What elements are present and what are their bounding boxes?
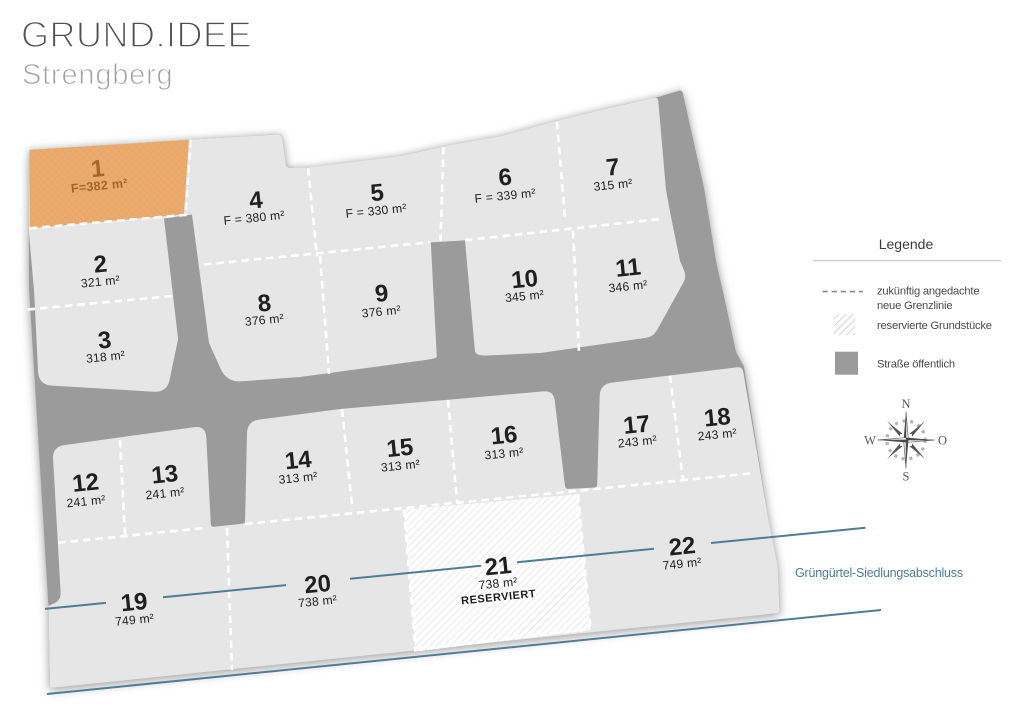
svg-text:Strengberg: Strengberg xyxy=(22,59,174,91)
svg-text:S: S xyxy=(903,470,910,484)
svg-text:Straße öffentlich: Straße öffentlich xyxy=(877,358,955,370)
svg-text:N: N xyxy=(901,397,910,411)
svg-text:Grüngürtel-Siedlungsabschluss: Grüngürtel-Siedlungsabschluss xyxy=(795,566,963,580)
svg-text:O: O xyxy=(938,433,947,447)
svg-text:W: W xyxy=(864,433,876,447)
svg-text:GRUND.IDEE: GRUND.IDEE xyxy=(21,14,252,55)
svg-text:Legende: Legende xyxy=(879,236,934,252)
svg-text:neue Grenzlinie: neue Grenzlinie xyxy=(877,300,952,312)
svg-text:reservierte Grundstücke: reservierte Grundstücke xyxy=(877,320,992,332)
svg-text:zukünftig angedachte: zukünftig angedachte xyxy=(877,285,979,297)
